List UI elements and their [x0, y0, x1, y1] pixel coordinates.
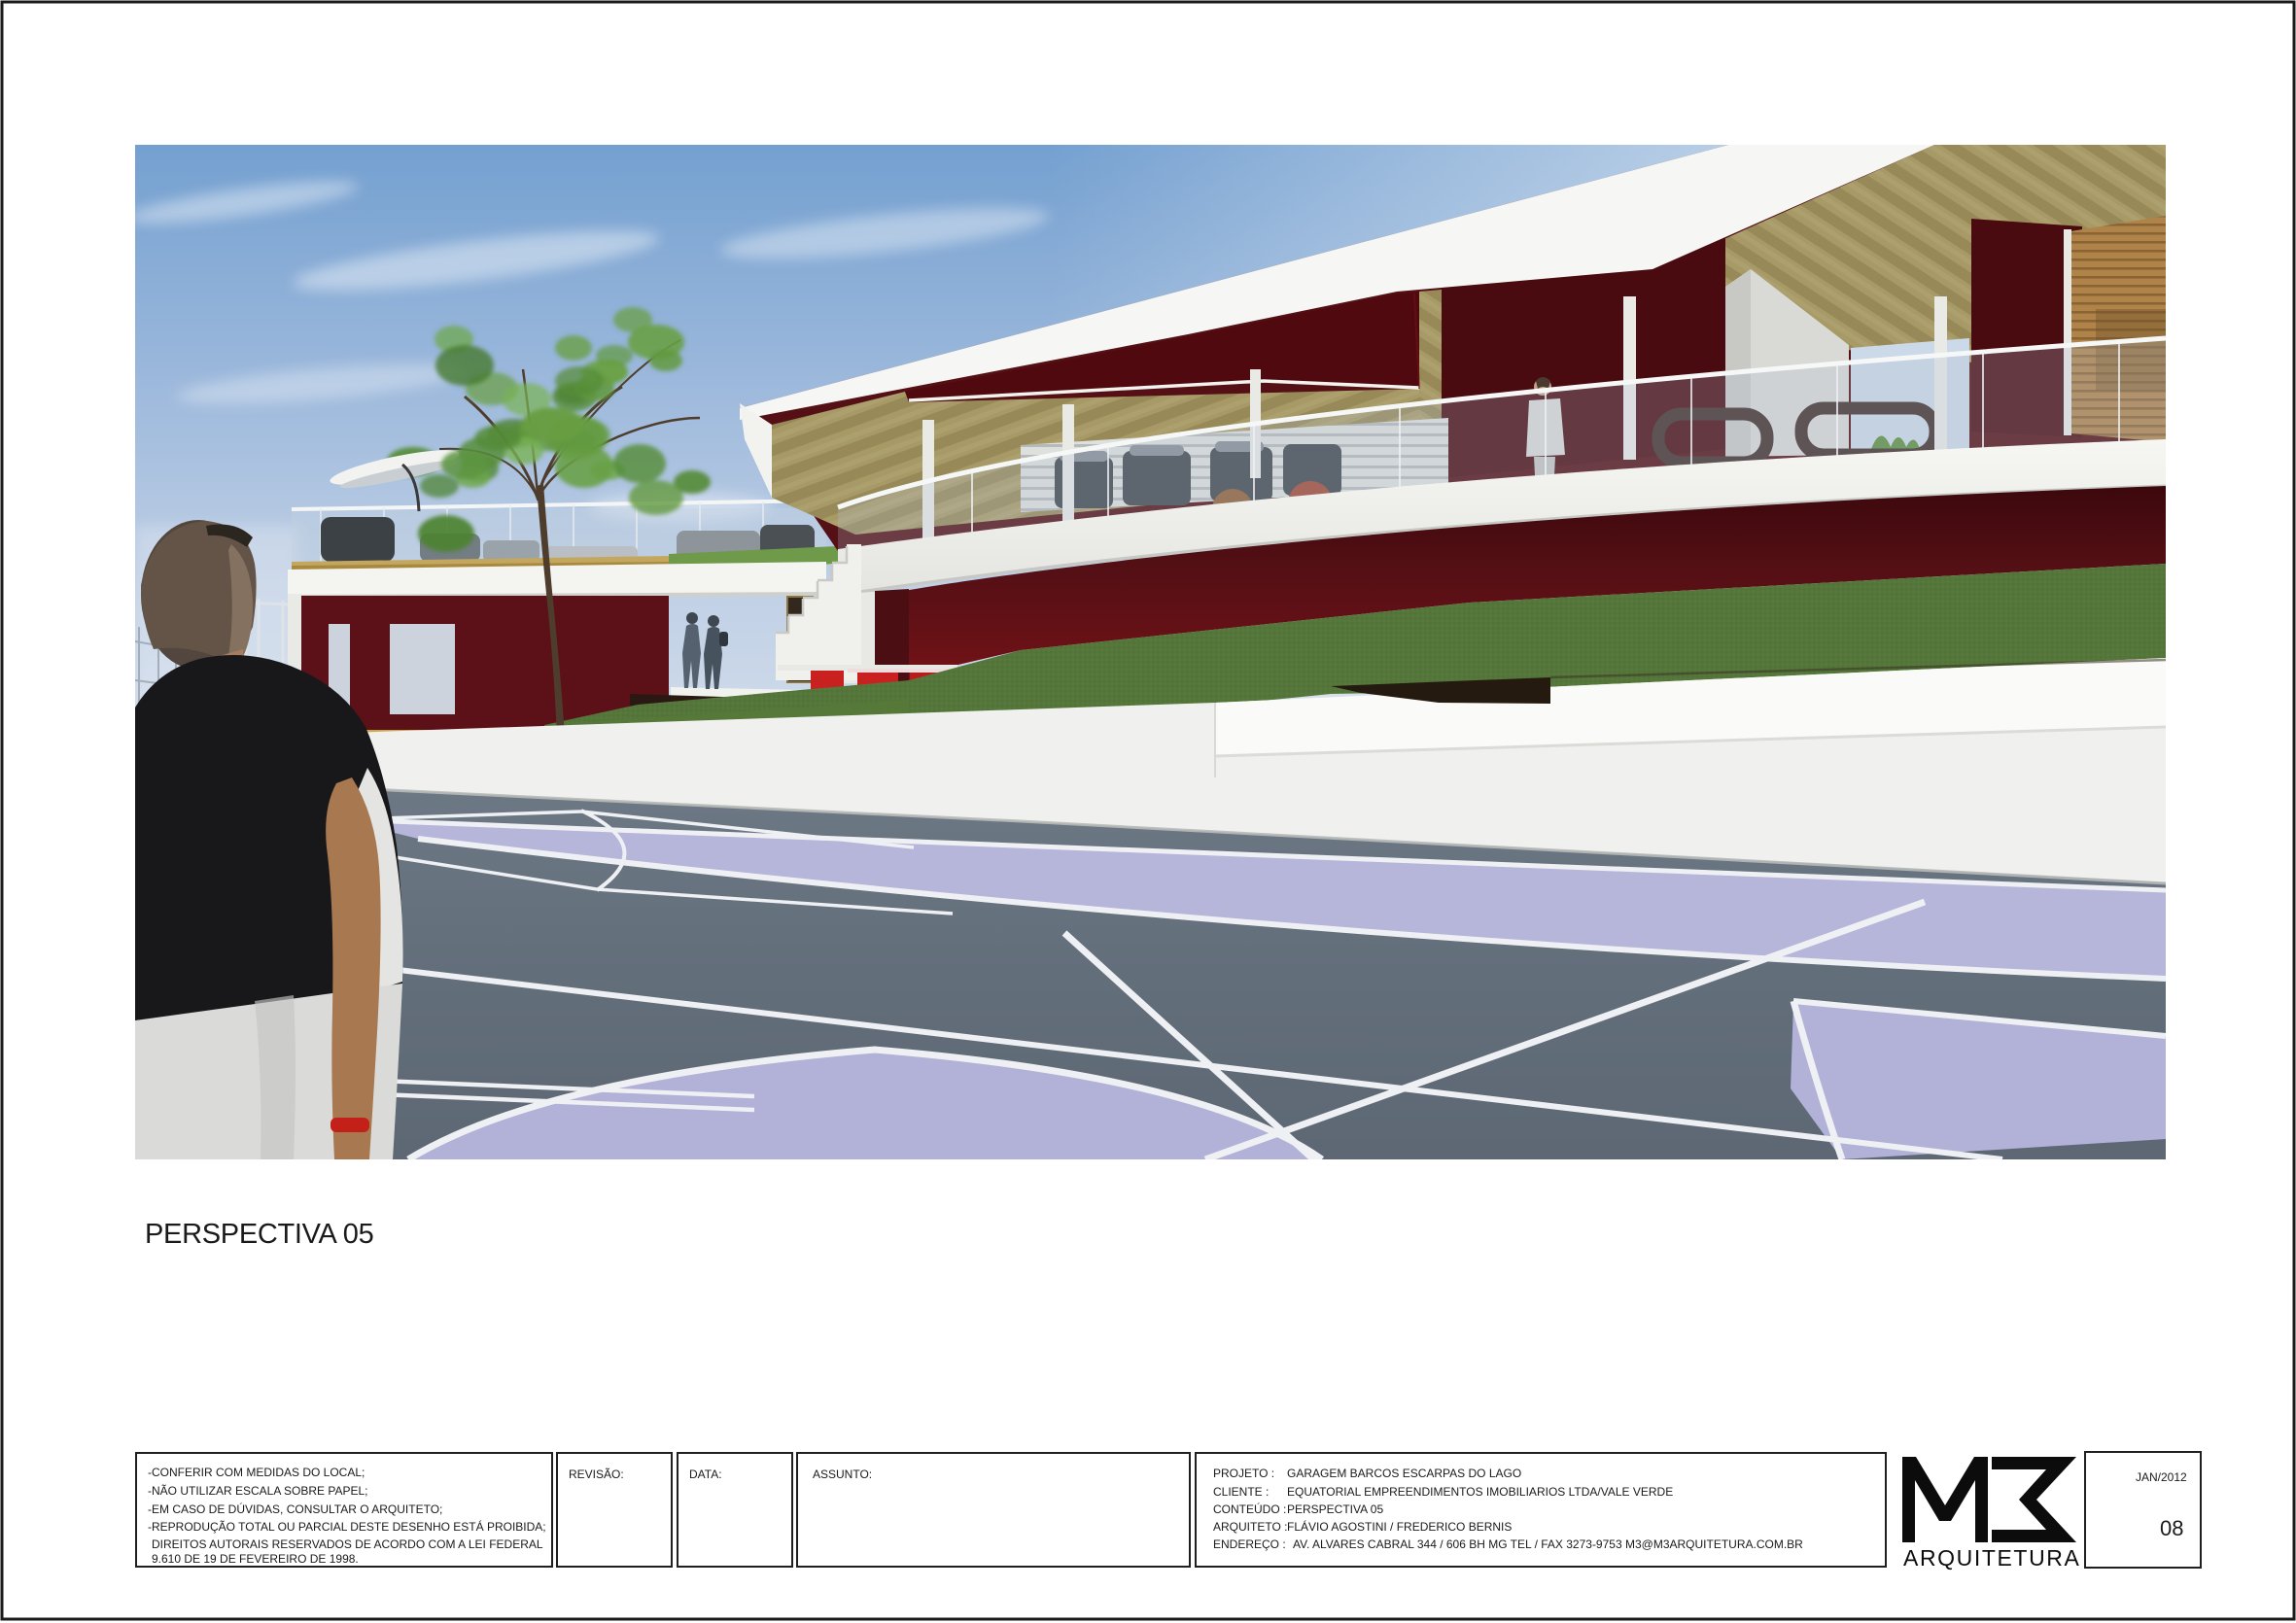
svg-text:PERSPECTIVA 05: PERSPECTIVA 05	[1287, 1502, 1383, 1516]
svg-text:DATA:: DATA:	[689, 1468, 722, 1481]
svg-text:JAN/2012: JAN/2012	[2136, 1470, 2187, 1484]
svg-text:DIREITOS AUTORAIS RESERVADOS D: DIREITOS AUTORAIS RESERVADOS DE ACORDO C…	[152, 1537, 543, 1551]
svg-text:REVISÃO:: REVISÃO:	[569, 1468, 624, 1481]
svg-text:ENDEREÇO :: ENDEREÇO :	[1213, 1537, 1286, 1551]
svg-text:08: 08	[2160, 1516, 2183, 1540]
svg-text:GARAGEM BARCOS ESCARPAS DO LAG: GARAGEM BARCOS ESCARPAS DO LAGO	[1287, 1467, 1521, 1480]
svg-text:-NÃO UTILIZAR ESCALA SOBRE PAP: -NÃO UTILIZAR ESCALA SOBRE PAPEL;	[148, 1484, 368, 1498]
svg-text:-REPRODUÇÃO TOTAL OU PARCIAL D: -REPRODUÇÃO TOTAL OU PARCIAL DESTE DESEN…	[148, 1519, 546, 1534]
svg-text:EQUATORIAL EMPREENDIMENTOS IMO: EQUATORIAL EMPREENDIMENTOS IMOBILIARIOS …	[1287, 1485, 1673, 1499]
svg-text:9.610 DE 19 DE FEVEREIRO DE 19: 9.610 DE 19 DE FEVEREIRO DE 1998.	[152, 1552, 359, 1566]
svg-text:-CONFERIR COM MEDIDAS DO LOCAL: -CONFERIR COM MEDIDAS DO LOCAL;	[148, 1466, 365, 1479]
svg-text:CLIENTE :: CLIENTE :	[1213, 1485, 1269, 1499]
svg-text:ASSUNTO:: ASSUNTO:	[813, 1468, 872, 1481]
svg-text:-EM CASO DE DÚVIDAS, CONSULTAR: -EM CASO DE DÚVIDAS, CONSULTAR O ARQUITE…	[148, 1502, 442, 1516]
svg-text:PROJETO :: PROJETO :	[1213, 1467, 1274, 1480]
svg-text:FLÁVIO AGOSTINI / FREDERICO BE: FLÁVIO AGOSTINI / FREDERICO BERNIS	[1287, 1519, 1512, 1534]
svg-text:ARQUITETURA: ARQUITETURA	[1903, 1545, 2080, 1571]
svg-text:CONTEÚDO :: CONTEÚDO :	[1213, 1502, 1286, 1516]
svg-text:ARQUITETO :: ARQUITETO :	[1213, 1520, 1287, 1534]
svg-text:PERSPECTIVA 05: PERSPECTIVA 05	[145, 1219, 373, 1250]
svg-text:AV. ALVARES CABRAL 344 / 606 B: AV. ALVARES CABRAL 344 / 606 BH MG TEL /…	[1293, 1537, 1803, 1551]
